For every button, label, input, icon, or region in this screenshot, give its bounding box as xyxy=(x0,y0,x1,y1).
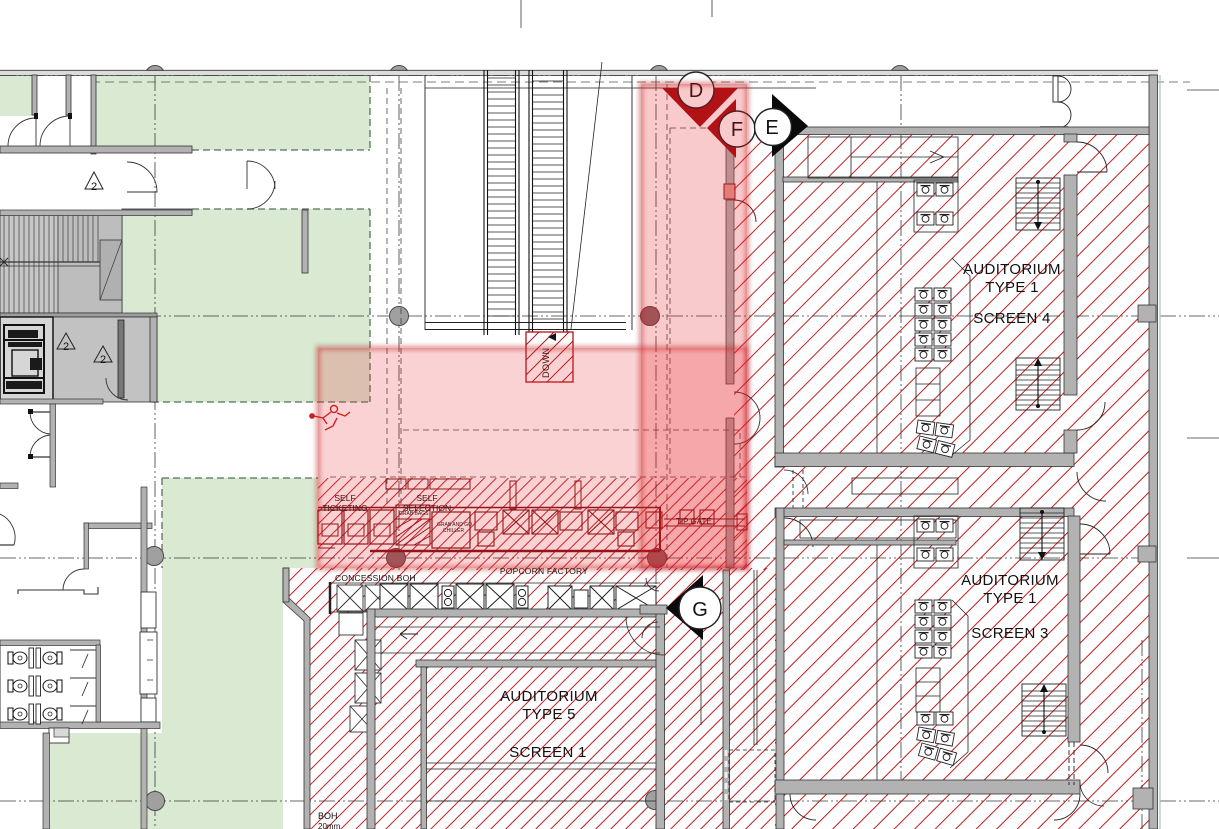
svg-text:SCREEN 1: SCREEN 1 xyxy=(509,744,586,761)
svg-text:2: 2 xyxy=(100,354,106,366)
svg-text:CONCESSION BOH: CONCESSION BOH xyxy=(335,573,416,583)
svg-text:SCREEN 4: SCREEN 4 xyxy=(973,310,1050,327)
svg-text:SCREEN 3: SCREEN 3 xyxy=(971,625,1048,642)
svg-text:TYPE 1: TYPE 1 xyxy=(983,590,1037,607)
svg-text:AUDITORIUM: AUDITORIUM xyxy=(961,572,1059,589)
svg-text:2: 2 xyxy=(91,181,97,193)
svg-text:G: G xyxy=(692,599,708,621)
svg-text:E: E xyxy=(765,117,778,139)
svg-text:TYPE 5: TYPE 5 xyxy=(522,706,576,723)
svg-text:AUDITORIUM: AUDITORIUM xyxy=(963,261,1061,278)
svg-text:20mm: 20mm xyxy=(318,822,341,829)
svg-text:2: 2 xyxy=(63,341,69,353)
svg-text:AUDITORIUM: AUDITORIUM xyxy=(500,688,598,705)
svg-text:TYPE 1: TYPE 1 xyxy=(985,279,1039,296)
svg-text:BOH: BOH xyxy=(318,811,338,821)
